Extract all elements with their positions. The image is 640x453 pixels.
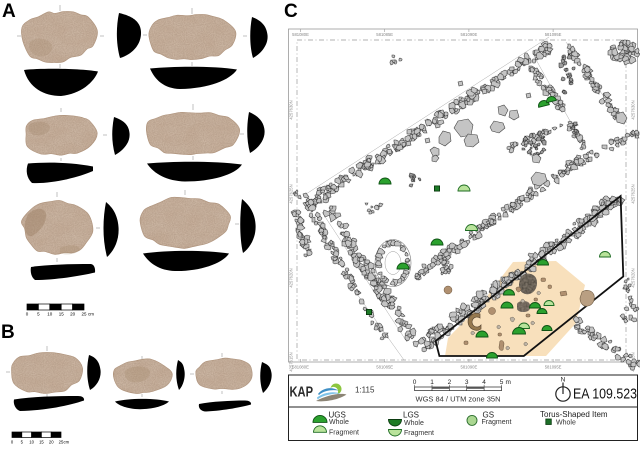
svg-text:m: m (506, 379, 511, 386)
svg-text:581095E: 581095E (545, 32, 562, 37)
svg-text:Fragment: Fragment (404, 430, 434, 437)
svg-text:20: 20 (49, 440, 54, 445)
svg-text:Fragment: Fragment (329, 430, 359, 437)
svg-text:10: 10 (47, 312, 53, 317)
svg-text:4257630N: 4257630N (289, 100, 294, 119)
svg-text:KAP: KAP (290, 384, 314, 401)
svg-text:4257630N: 4257630N (631, 100, 636, 119)
svg-text:15: 15 (59, 312, 65, 317)
svg-text:N: N (561, 377, 566, 384)
svg-text:Fragment: Fragment (482, 419, 512, 426)
svg-text:15: 15 (39, 440, 44, 445)
svg-text:4257615N: 4257615N (289, 352, 294, 371)
svg-text:Whole: Whole (556, 420, 576, 427)
svg-text:581090E: 581090E (461, 32, 478, 37)
svg-text:A: A (2, 1, 16, 22)
svg-text:Torus-Shaped Item: Torus-Shaped Item (540, 410, 608, 419)
svg-text:EA 109.523: EA 109.523 (573, 387, 637, 403)
svg-text:LGS: LGS (403, 411, 419, 420)
svg-text:Whole: Whole (329, 419, 349, 426)
svg-text:B: B (1, 322, 15, 343)
svg-text:1:115: 1:115 (355, 386, 375, 395)
svg-text:Whole: Whole (404, 420, 424, 427)
svg-text:581085E: 581085E (376, 32, 393, 37)
svg-text:25: 25 (81, 312, 87, 317)
svg-text:581080E: 581080E (292, 32, 309, 37)
svg-text:581085E: 581085E (376, 365, 393, 370)
svg-text:10: 10 (29, 440, 34, 445)
svg-text:cm: cm (88, 312, 94, 317)
svg-text:20: 20 (70, 312, 76, 317)
svg-text:4257625N: 4257625N (631, 184, 636, 203)
svg-text:4257620N: 4257620N (289, 268, 294, 287)
svg-text:C: C (284, 1, 298, 22)
svg-text:581080E: 581080E (292, 365, 309, 370)
svg-text:581090E: 581090E (461, 365, 478, 370)
svg-text:WGS 84 / UTM zone 35N: WGS 84 / UTM zone 35N (415, 395, 500, 404)
svg-text:cm: cm (64, 440, 70, 445)
svg-text:581095E: 581095E (545, 365, 562, 370)
